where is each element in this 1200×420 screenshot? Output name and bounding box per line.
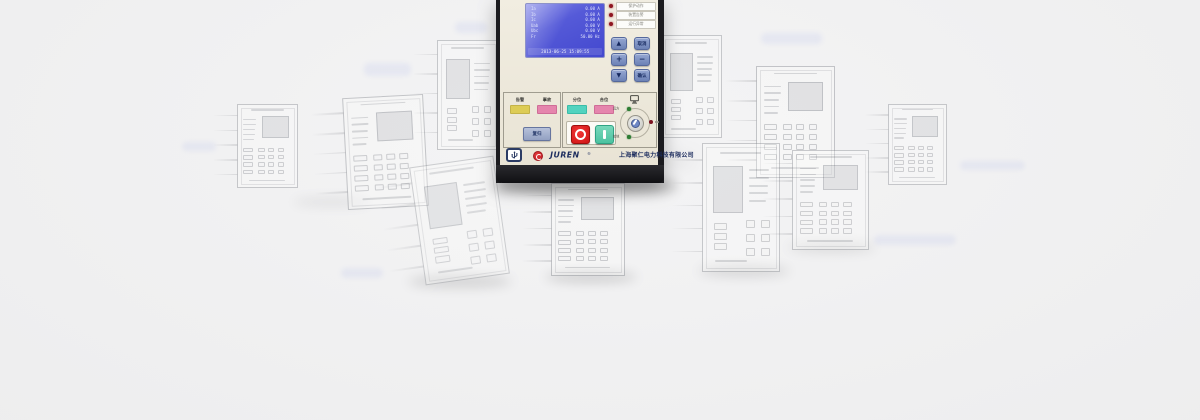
ghost-label-line — [764, 92, 781, 94]
ghost-key — [831, 228, 839, 233]
remote-label: 远方 — [612, 106, 626, 112]
ghost-key — [927, 153, 933, 157]
motion-streak — [311, 112, 344, 115]
ghost-title-line — [251, 109, 284, 110]
lcd-row-value: 0.00 A — [585, 13, 599, 17]
ghost-label-line — [474, 76, 489, 78]
ghost-label-line — [749, 200, 766, 202]
ghost-key — [831, 202, 839, 207]
ghost-key — [746, 234, 755, 242]
ghost-key — [386, 154, 395, 160]
lcd-row-label: Uab — [531, 24, 538, 28]
reset-button: 复归 — [523, 127, 551, 141]
ghost-label-line — [474, 63, 490, 65]
motion-streak — [725, 120, 757, 122]
brand-row: JUREN ® 上海聚仁电力科技有限公司 — [533, 150, 719, 162]
ghost-title-line — [675, 42, 707, 44]
ghost-key — [796, 144, 804, 150]
ghost-key — [472, 106, 479, 113]
led-dot — [609, 4, 613, 8]
ghost-key — [588, 248, 596, 253]
reset-button-label: 复归 — [533, 132, 542, 137]
faint-watermark — [364, 63, 411, 76]
ghost-key — [484, 130, 491, 137]
motion-streak — [762, 233, 794, 235]
ghost-flat-key — [243, 155, 253, 160]
lcd-measurements: Ia0.00 AIb0.00 AIc0.00 AUab0.00 VUbc0.00… — [531, 7, 601, 41]
ghost-key — [588, 256, 596, 261]
ghost-key — [843, 202, 851, 207]
ghost-key — [783, 144, 791, 150]
led-indicator-block: 保护动作装置告警运行异常 — [609, 2, 657, 30]
ghost-flat-key — [435, 255, 450, 263]
ghost-label-line — [800, 179, 815, 181]
ghost-key — [796, 124, 804, 130]
ghost-key — [484, 106, 491, 113]
lcd-screen: Ia0.00 AIb0.00 AIc0.00 AUab0.00 VUbc0.00… — [525, 3, 605, 58]
ghost-label-line — [243, 134, 255, 135]
motion-streak — [762, 163, 794, 165]
remote-led — [627, 107, 631, 111]
motion-streak — [865, 114, 889, 116]
ghost-flat-key — [447, 108, 457, 114]
ghost-flat-key — [355, 185, 369, 192]
motion-streak — [312, 132, 345, 135]
ghost-flat-key — [800, 228, 813, 233]
ghost-key — [600, 239, 608, 244]
ghost-key — [783, 124, 791, 130]
ghost-flat-key — [671, 107, 681, 113]
ghost-footer-line — [565, 267, 610, 268]
ghost-key — [746, 220, 755, 228]
ghost-title-line — [902, 109, 934, 110]
motion-streak — [315, 191, 348, 194]
ghost-label-line — [894, 137, 904, 138]
ghost-label-line — [800, 185, 815, 187]
ghost-flat-key — [800, 202, 813, 207]
selector-dot-2 — [657, 121, 659, 123]
ghost-flat-key — [764, 134, 777, 140]
lcd-row-value: 0.00 V — [585, 24, 599, 28]
ghost-label-line — [764, 106, 779, 108]
ghost-flat-key — [800, 211, 813, 216]
ghost-key — [696, 119, 703, 126]
ghost-label-line — [466, 203, 487, 208]
motion-streak — [213, 174, 238, 176]
ghost-label-line — [749, 177, 770, 179]
ghost-device — [237, 104, 298, 188]
ghost-key — [387, 173, 396, 179]
motion-streak — [213, 130, 238, 132]
ghost-flat-key — [558, 240, 570, 245]
brand-company-name: 上海聚仁电力科技有限公司 — [594, 150, 719, 162]
ghost-key — [843, 228, 851, 233]
motion-streak — [522, 228, 552, 230]
ghost-title-line — [451, 47, 483, 49]
lcd-row: Fr50.00 Hz — [531, 35, 601, 41]
ghost-key — [927, 146, 933, 150]
ghost-flat-key — [714, 243, 727, 250]
motion-streak — [522, 211, 552, 213]
closed-position-lamp — [594, 105, 614, 114]
ghost-key — [809, 134, 817, 140]
motion-streak — [762, 216, 794, 218]
relay-device: Ia0.00 AIb0.00 AIc0.00 AUab0.00 VUbc0.00… — [496, 0, 664, 183]
lcd-timestamp: 2013-06-25 15:09:55 — [528, 48, 602, 55]
ghost-label-line — [353, 143, 367, 145]
ghost-key — [707, 119, 714, 126]
ghost-title-line — [720, 152, 761, 154]
ghost-flat-key — [447, 117, 457, 123]
lcd-row-label: Ia — [531, 7, 536, 11]
ghost-flat-key — [243, 148, 253, 153]
ghost-label-line — [467, 210, 486, 214]
ghost-footer-line — [448, 139, 473, 141]
ghost-key — [472, 130, 479, 137]
ghost-key — [400, 163, 409, 169]
ghost-key — [746, 248, 755, 256]
ghost-key — [467, 230, 478, 239]
ghost-title-line — [774, 73, 817, 75]
ghost-footer-line — [807, 240, 854, 242]
ghost-label-line — [749, 185, 768, 187]
motion-streak — [671, 251, 703, 253]
alarm-lamp — [510, 105, 530, 114]
motion-streak — [865, 143, 889, 145]
led-row: 装置告警 — [609, 11, 657, 19]
led-dot — [609, 13, 613, 17]
fault-label: 事故 — [543, 98, 551, 102]
motion-streak — [314, 172, 347, 175]
ghost-key — [696, 97, 703, 104]
closed-position-label: 合位 — [600, 98, 608, 102]
ghost-label-line — [894, 123, 907, 124]
keypad-arrow-down-button: ▼ — [611, 69, 627, 82]
ghost-flat-key — [800, 220, 813, 225]
motion-streak — [413, 54, 438, 56]
ghost-screen — [424, 182, 463, 229]
ghost-title-line — [361, 101, 405, 105]
ghost-flat-key — [714, 233, 727, 240]
ghost-label-line — [800, 174, 817, 176]
lcd-row-label: Ic — [531, 18, 536, 22]
motion-streak — [384, 224, 419, 230]
ghost-key — [908, 153, 914, 157]
ghost-key — [783, 134, 791, 140]
ghost-key — [696, 108, 703, 115]
ghost-key — [796, 134, 804, 140]
ghost-screen — [823, 165, 858, 190]
ghost-label-line — [243, 119, 256, 120]
ghost-key — [819, 211, 827, 216]
ghost-label-line — [697, 56, 713, 58]
ghost-key — [576, 239, 584, 244]
ghost-label-line — [764, 99, 779, 101]
ghost-key — [484, 240, 495, 249]
ghost-device — [661, 35, 722, 138]
hero-banner: Ia0.00 AIb0.00 AIc0.00 AUab0.00 VUbc0.00… — [0, 0, 1200, 420]
led-label: 装置告警 — [616, 11, 656, 20]
motion-streak — [671, 205, 703, 207]
ghost-key — [278, 162, 284, 167]
ghost-label-line — [558, 210, 572, 211]
ghost-key — [927, 160, 933, 164]
ghost-flat-key — [894, 146, 904, 150]
ghost-label-line — [764, 86, 781, 88]
ghost-key — [600, 256, 608, 261]
brand-reg-mark: ® — [587, 151, 591, 161]
ghost-key — [819, 202, 827, 207]
device-panel: Ia0.00 AIb0.00 AIc0.00 AUab0.00 VUbc0.00… — [500, 0, 658, 165]
ghost-screen — [376, 111, 414, 141]
motion-streak — [522, 260, 552, 262]
device-bottom-bar — [496, 165, 664, 183]
close-i-glyph — [603, 130, 606, 139]
trip-button — [571, 125, 590, 144]
ghost-key — [484, 118, 491, 125]
ghost-key — [918, 153, 924, 157]
ghost-flat-key — [894, 160, 904, 164]
ghost-label-line — [894, 118, 907, 119]
ghost-key — [258, 170, 264, 175]
keypad-plus-button: + — [611, 53, 627, 66]
ghost-title-line — [429, 167, 474, 175]
faint-watermark — [182, 142, 216, 151]
ghost-key — [258, 162, 264, 167]
motion-streak — [522, 195, 552, 197]
ghost-label-line — [464, 188, 486, 193]
ghost-flat-key — [558, 256, 570, 261]
ghost-footer-line — [249, 180, 286, 181]
keypad-arrow-up-button: ▲ — [611, 37, 627, 50]
trip-o-glyph — [575, 129, 586, 140]
ghost-label-line — [749, 169, 770, 171]
lcd-timestamp-text: 2013-06-25 15:09:55 — [541, 49, 589, 53]
ghost-flat-key — [354, 165, 368, 172]
keypad-cancel-button: 取消 — [634, 37, 650, 50]
lock-led — [649, 120, 653, 124]
ghost-key — [268, 148, 274, 153]
lcd-row-value: 0.00 A — [585, 18, 599, 22]
motion-streak — [389, 266, 424, 272]
ghost-key — [387, 163, 396, 169]
faint-watermark — [455, 22, 487, 33]
ghost-flat-key — [558, 231, 570, 236]
ghost-flat-key — [433, 236, 448, 244]
motion-streak — [671, 182, 703, 184]
motion-streak — [865, 157, 889, 159]
ghost-key — [400, 173, 409, 179]
led-row: 保护动作 — [609, 2, 657, 10]
motion-streak — [725, 140, 757, 142]
ghost-device — [437, 40, 499, 150]
ghost-device — [888, 104, 947, 185]
ghost-screen — [912, 116, 938, 137]
ghost-key — [761, 248, 770, 256]
monitor-icon — [630, 95, 639, 104]
ghost-key — [761, 234, 770, 242]
ghost-label-line — [749, 192, 768, 194]
ghost-device — [792, 150, 869, 250]
ghost-key — [268, 170, 274, 175]
ghost-screen — [670, 53, 694, 90]
ghost-footer-line — [363, 196, 412, 200]
ghost-label-line — [894, 133, 905, 134]
motion-streak — [413, 132, 438, 134]
ghost-screen — [262, 116, 289, 137]
brand-logo-text: JUREN — [546, 151, 584, 161]
ghost-key — [278, 148, 284, 153]
trip-close-box — [566, 121, 616, 145]
ghost-label-line — [697, 74, 712, 76]
motion-streak — [413, 73, 438, 75]
lcd-row-value: 0.00 A — [585, 7, 599, 11]
open-position-label: 分位 — [573, 98, 581, 102]
ghost-label-line — [800, 168, 817, 170]
ghost-key — [908, 160, 914, 164]
keypad-confirm-button: 确认 — [634, 69, 650, 82]
ghost-label-line — [474, 89, 488, 91]
usb-icon — [510, 151, 519, 160]
open-position-indicator: 分位 — [567, 97, 587, 114]
faint-watermark — [874, 235, 956, 245]
lcd-row-label: Ubc — [531, 29, 538, 33]
ghost-key — [576, 248, 584, 253]
motion-streak — [413, 93, 438, 95]
motion-streak — [213, 144, 238, 146]
motion-streak — [213, 159, 238, 161]
motion-streak — [413, 112, 438, 114]
ghost-label-line — [764, 112, 778, 114]
ghost-flat-key — [354, 175, 368, 182]
ghost-key — [258, 148, 264, 153]
juren-logo-icon — [533, 151, 543, 161]
ghost-device — [409, 156, 510, 286]
lcd-row-label: Ib — [531, 13, 536, 17]
led-row: 运行异常 — [609, 20, 657, 28]
ghost-flat-key — [243, 162, 253, 167]
ghost-title-line — [568, 189, 608, 191]
fault-lamp — [537, 105, 557, 114]
ghost-label-line — [474, 69, 490, 71]
motion-streak — [313, 152, 346, 155]
ghost-key — [268, 162, 274, 167]
ghost-key — [707, 97, 714, 104]
motion-streak — [865, 129, 889, 131]
keypad-minus-button: − — [634, 53, 650, 66]
ghost-key — [576, 256, 584, 261]
ghost-label-line — [697, 62, 713, 64]
alarm-label: 告警 — [516, 98, 524, 102]
ghost-screen — [713, 166, 743, 213]
ghost-key — [918, 160, 924, 164]
ghost-label-line — [351, 117, 368, 120]
ghost-flat-key — [671, 99, 681, 105]
ghost-key — [374, 164, 383, 170]
local-label: 就地 — [612, 134, 626, 140]
faint-watermark — [761, 33, 822, 44]
ghost-label-line — [558, 205, 574, 206]
ghost-key — [809, 124, 817, 130]
ghost-footer-line — [899, 177, 934, 178]
ghost-label-line — [697, 68, 712, 70]
ghost-flat-key — [353, 155, 367, 162]
ghost-key — [374, 174, 383, 180]
remote-local-selector: 远方 就地 — [618, 94, 658, 148]
fault-indicator: 事故 — [537, 97, 557, 114]
ghost-flat-key — [434, 246, 449, 254]
ghost-key — [918, 146, 924, 150]
motion-streak — [725, 80, 757, 82]
ghost-key — [843, 219, 851, 224]
ghost-key — [469, 243, 480, 252]
ghost-key — [783, 154, 791, 160]
ghost-key — [908, 167, 914, 171]
ghost-label-line — [558, 221, 571, 222]
ghost-key — [576, 231, 584, 236]
led-dot — [609, 22, 613, 26]
ghost-footer-line — [715, 260, 747, 262]
ghost-flat-key — [558, 248, 570, 253]
motion-streak — [522, 244, 552, 246]
ghost-label-line — [558, 216, 572, 217]
ghost-key — [819, 228, 827, 233]
ghost-device — [551, 183, 625, 276]
ghost-screen — [581, 197, 614, 221]
ghost-key — [470, 255, 481, 264]
ghost-flat-key — [243, 170, 253, 175]
ghost-key — [927, 167, 933, 171]
ghost-key — [258, 155, 264, 160]
ghost-flat-key — [894, 153, 904, 157]
ghost-title-line — [810, 156, 852, 158]
ghost-label-line — [465, 196, 486, 201]
ghost-label-line — [800, 191, 814, 193]
ghost-key — [843, 211, 851, 216]
ghost-screen — [446, 59, 470, 99]
ghost-key — [486, 253, 497, 262]
ghost-label-line — [243, 124, 256, 125]
ghost-label-line — [243, 139, 254, 140]
ghost-key — [278, 155, 284, 160]
ghost-label-line — [474, 82, 489, 84]
ghost-key — [588, 239, 596, 244]
ghost-key — [600, 248, 608, 253]
faint-watermark — [960, 161, 1025, 170]
motion-streak — [213, 115, 238, 117]
motion-streak — [386, 245, 421, 251]
ghost-key — [819, 219, 827, 224]
ghost-key — [268, 155, 274, 160]
ghost-footer-line — [438, 267, 473, 274]
ghost-key — [761, 220, 770, 228]
ghost-label-line — [352, 123, 369, 126]
motion-streak — [865, 171, 889, 173]
alarm-indicator: 告警 — [510, 97, 530, 114]
usb-port — [506, 148, 522, 162]
motion-streak — [762, 180, 794, 182]
ghost-footer-line — [671, 128, 696, 130]
ghost-key — [482, 228, 493, 237]
ghost-label-line — [697, 80, 711, 82]
ghost-key — [707, 108, 714, 115]
ghost-flat-key — [764, 124, 777, 130]
lcd-row-label: Fr — [531, 35, 536, 39]
signal-cell-left: 告警 事故 复归 — [503, 92, 561, 148]
faint-watermark — [341, 268, 383, 278]
ghost-label-line — [463, 181, 485, 186]
ghost-key — [588, 231, 596, 236]
